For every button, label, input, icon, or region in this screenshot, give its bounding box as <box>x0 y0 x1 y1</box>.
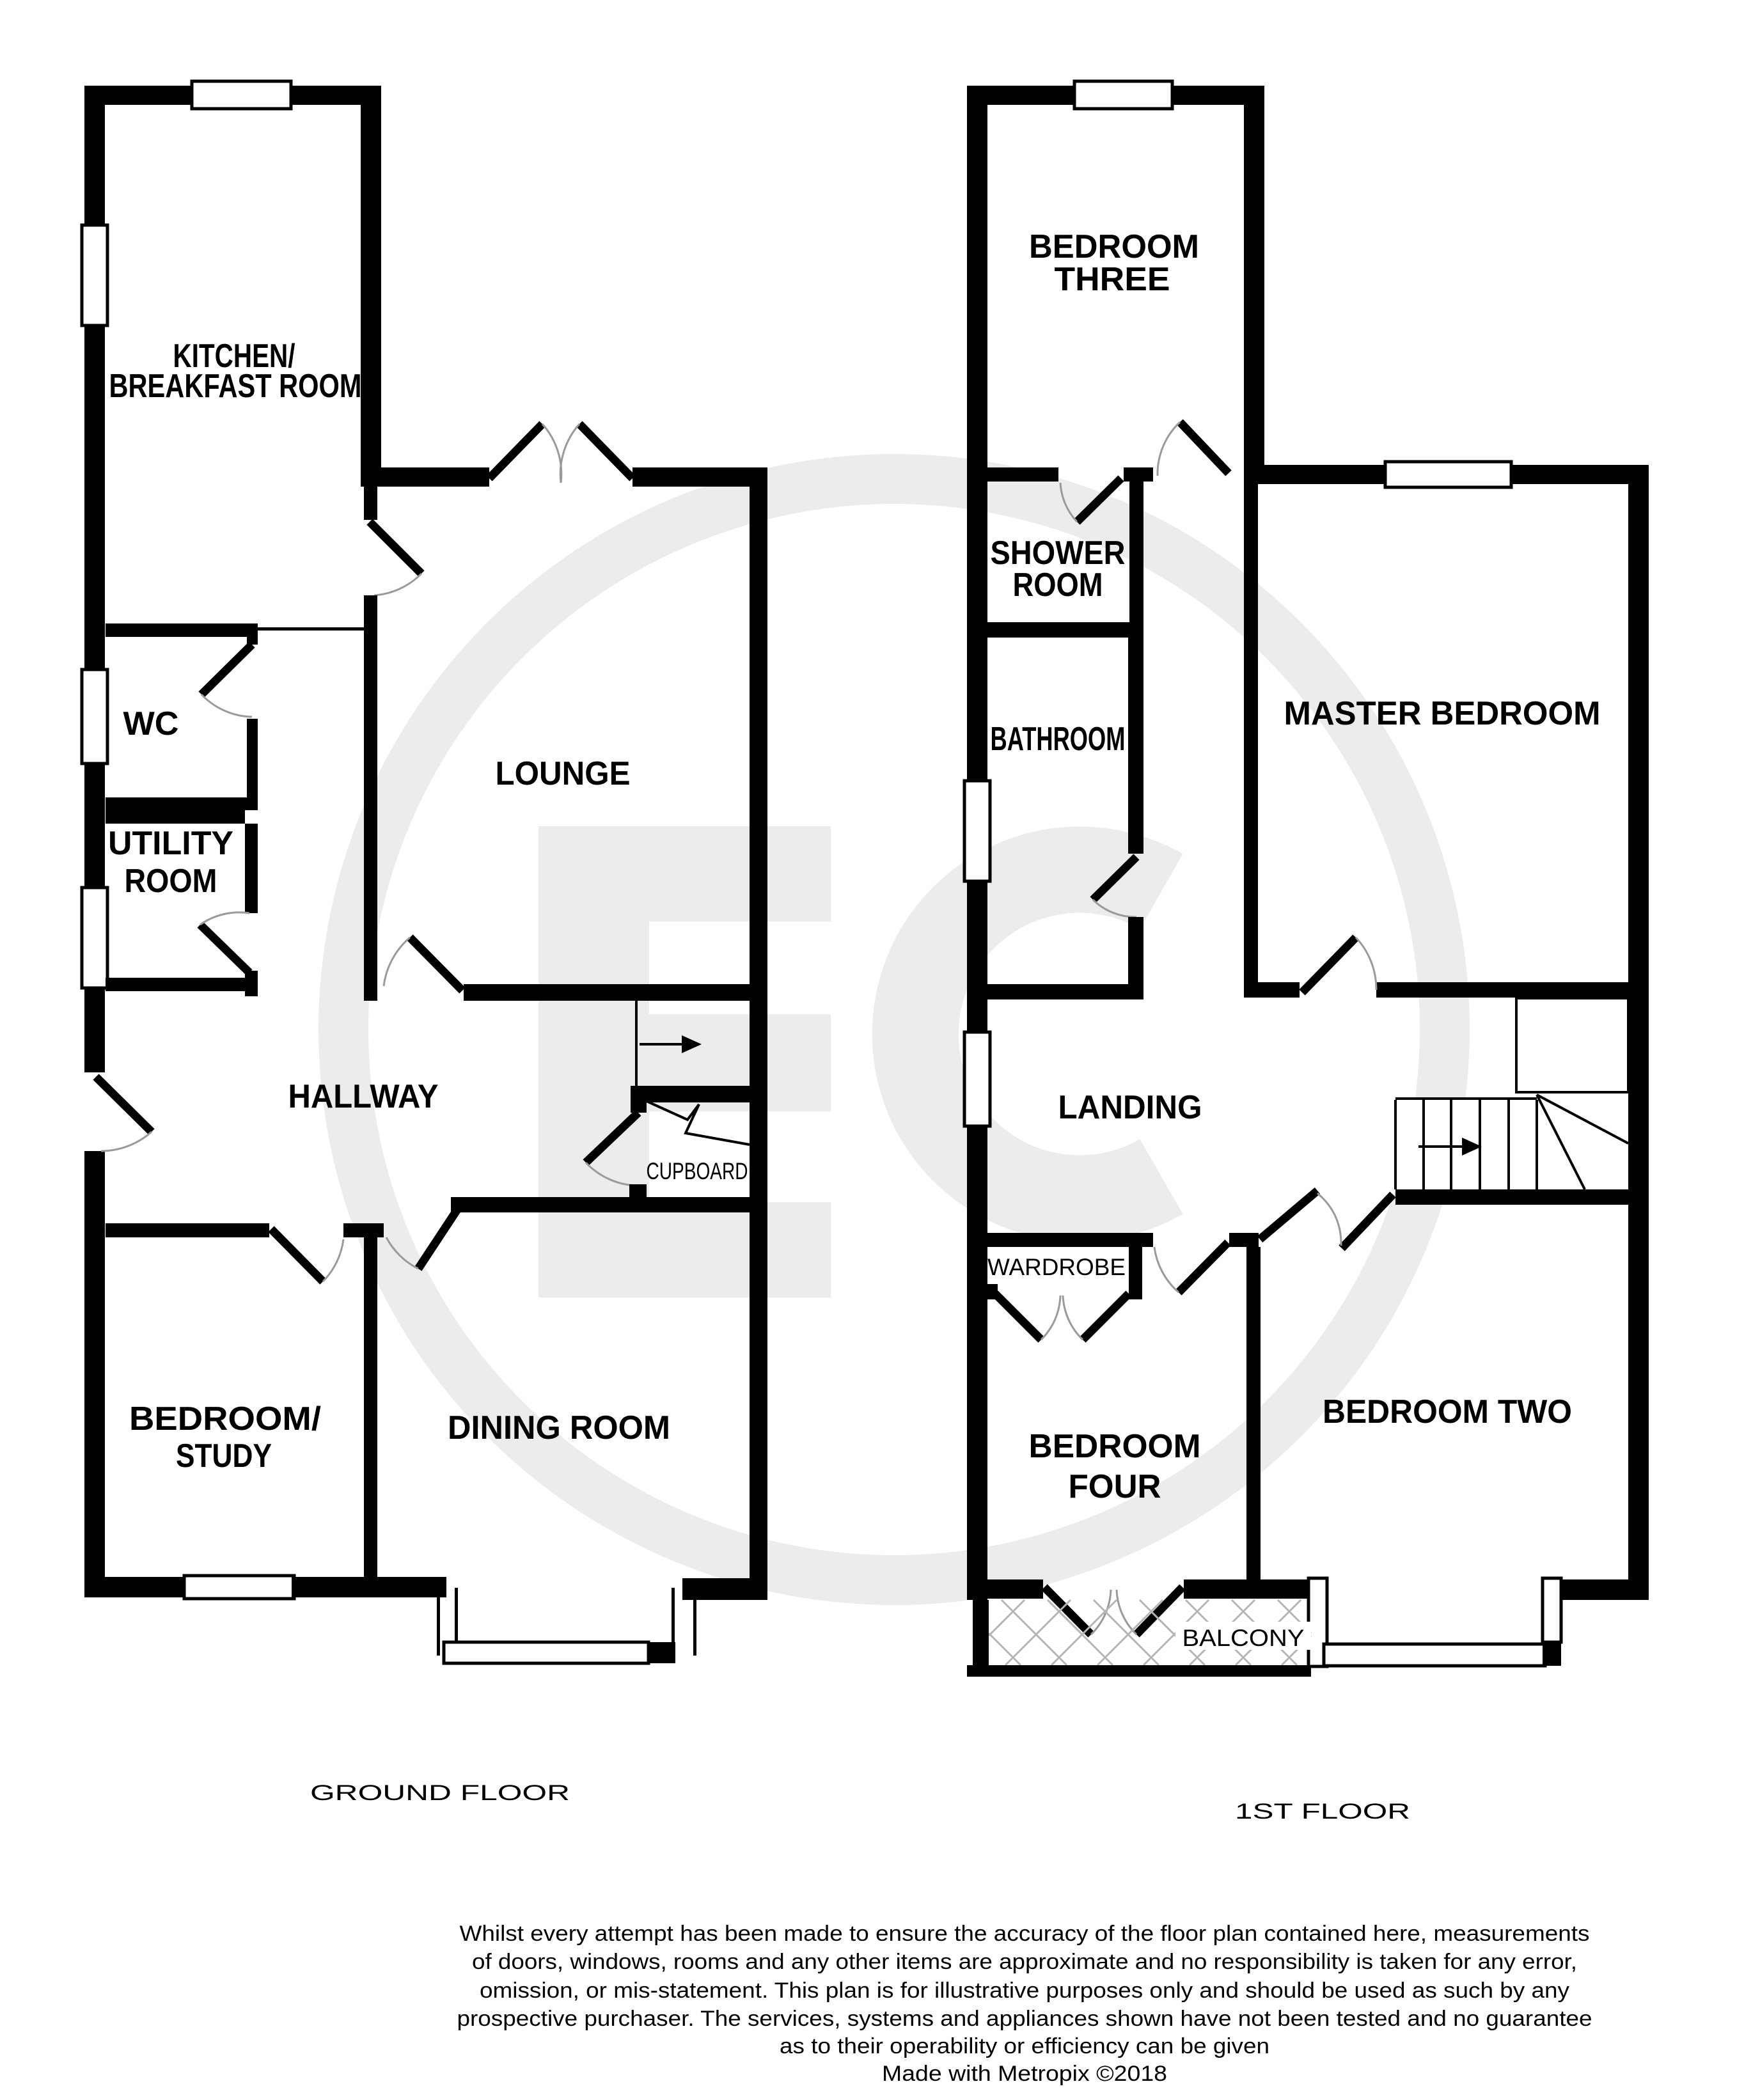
svg-text:BATHROOM: BATHROOM <box>991 721 1126 758</box>
svg-text:BEDROOM TWO: BEDROOM TWO <box>1323 1393 1572 1430</box>
svg-text:WARDROBE: WARDROBE <box>987 1254 1126 1280</box>
svg-text:BEDROOM: BEDROOM <box>1029 228 1199 265</box>
svg-text:of doors, windows, rooms and a: of doors, windows, rooms and any other i… <box>472 1950 1577 1974</box>
svg-text:HALLWAY: HALLWAY <box>288 1078 439 1115</box>
svg-text:1ST FLOOR: 1ST FLOOR <box>1235 1799 1410 1824</box>
svg-text:BREAKFAST ROOM: BREAKFAST ROOM <box>109 368 362 405</box>
svg-text:FOUR: FOUR <box>1069 1468 1161 1505</box>
svg-text:WC: WC <box>123 705 179 742</box>
svg-text:GROUND FLOOR: GROUND FLOOR <box>310 1781 570 1805</box>
svg-text:CUPBOARD: CUPBOARD <box>647 1158 748 1184</box>
svg-text:UTILITY: UTILITY <box>108 825 233 862</box>
svg-text:ROOM: ROOM <box>1013 567 1103 604</box>
svg-text:LOUNGE: LOUNGE <box>496 755 631 792</box>
svg-text:MASTER BEDROOM: MASTER BEDROOM <box>1284 695 1601 732</box>
svg-text:Made with Metropix ©2018: Made with Metropix ©2018 <box>882 2062 1167 2086</box>
svg-text:Whilst every attempt has been: Whilst every attempt has been made to en… <box>460 1922 1590 1946</box>
svg-text:ROOM: ROOM <box>125 863 217 900</box>
svg-text:as to their operability or eff: as to their operability or efficiency ca… <box>780 2034 1269 2058</box>
svg-text:BEDROOM/: BEDROOM/ <box>129 1400 321 1438</box>
svg-text:prospective purchaser. The ser: prospective purchaser. The services, sys… <box>457 2007 1592 2031</box>
svg-text:LANDING: LANDING <box>1058 1089 1202 1126</box>
svg-text:THREE: THREE <box>1055 261 1170 298</box>
svg-text:STUDY: STUDY <box>176 1438 272 1475</box>
svg-text:omission, or mis-statement. Th: omission, or mis-statement. This plan is… <box>480 1979 1569 2003</box>
svg-text:DINING ROOM: DINING ROOM <box>448 1409 670 1446</box>
svg-text:BALCONY: BALCONY <box>1182 1625 1305 1651</box>
svg-text:BEDROOM: BEDROOM <box>1029 1428 1201 1465</box>
